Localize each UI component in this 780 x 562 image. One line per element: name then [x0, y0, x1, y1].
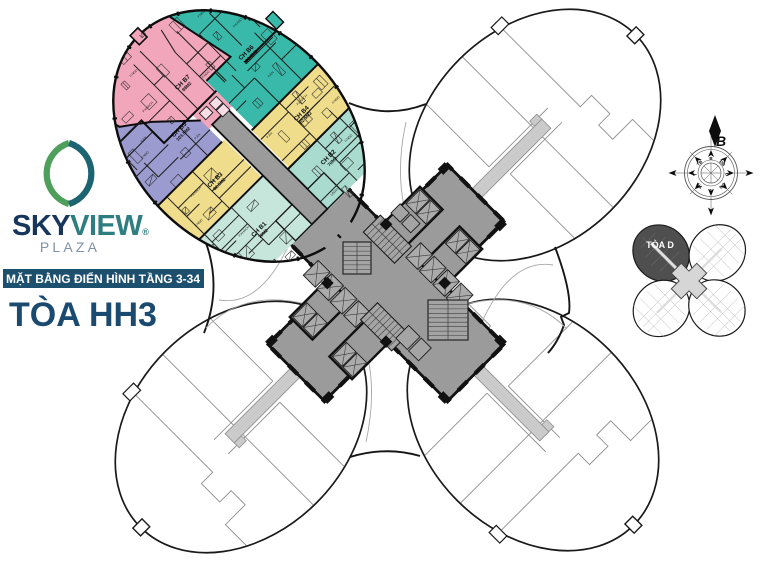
svg-text:N: N	[709, 188, 712, 193]
svg-text:TÒA D: TÒA D	[646, 239, 674, 250]
svg-text:SKYVIEW®: SKYVIEW®	[12, 210, 149, 242]
svg-text:T: T	[693, 173, 698, 176]
svg-text:TÒA HH3: TÒA HH3	[9, 296, 157, 334]
svg-text:B: B	[716, 133, 726, 149]
svg-text:PLAZA: PLAZA	[40, 239, 100, 255]
svg-text:MẶT BẰNG ĐIỂN HÌNH TẦNG 3-34: MẶT BẰNG ĐIỂN HÌNH TẦNG 3-34	[6, 271, 200, 286]
